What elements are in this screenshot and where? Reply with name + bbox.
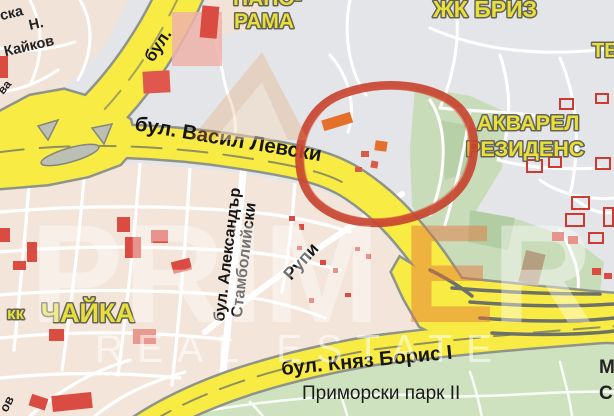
label-kk: кк <box>7 304 25 323</box>
watermark-brand-part2: R <box>492 195 593 352</box>
label-akvarel-1: АКВАРЕЛ <box>477 111 579 135</box>
label-te-partial: ТЕ <box>592 40 614 62</box>
label-panorama-2: РАМА <box>234 10 294 33</box>
map-screenshot: бул. Васил Левски бул. Княз Борис I бул.… <box>0 0 614 416</box>
label-m-partial: М <box>599 357 614 378</box>
label-panorama-1: ПАНО- <box>233 0 302 10</box>
map-canvas: бул. Васил Левски бул. Княз Борис I бул.… <box>0 0 614 416</box>
label-zhk-briz: ЖК БРИЗ <box>432 0 537 22</box>
watermark-subtitle: REAL ESTATE <box>95 328 506 371</box>
label-akvarel-2: РЕЗИДЕНС <box>466 137 584 161</box>
label-s-partial: С <box>599 383 613 404</box>
label-primorski-park: Приморски парк II <box>302 383 460 404</box>
